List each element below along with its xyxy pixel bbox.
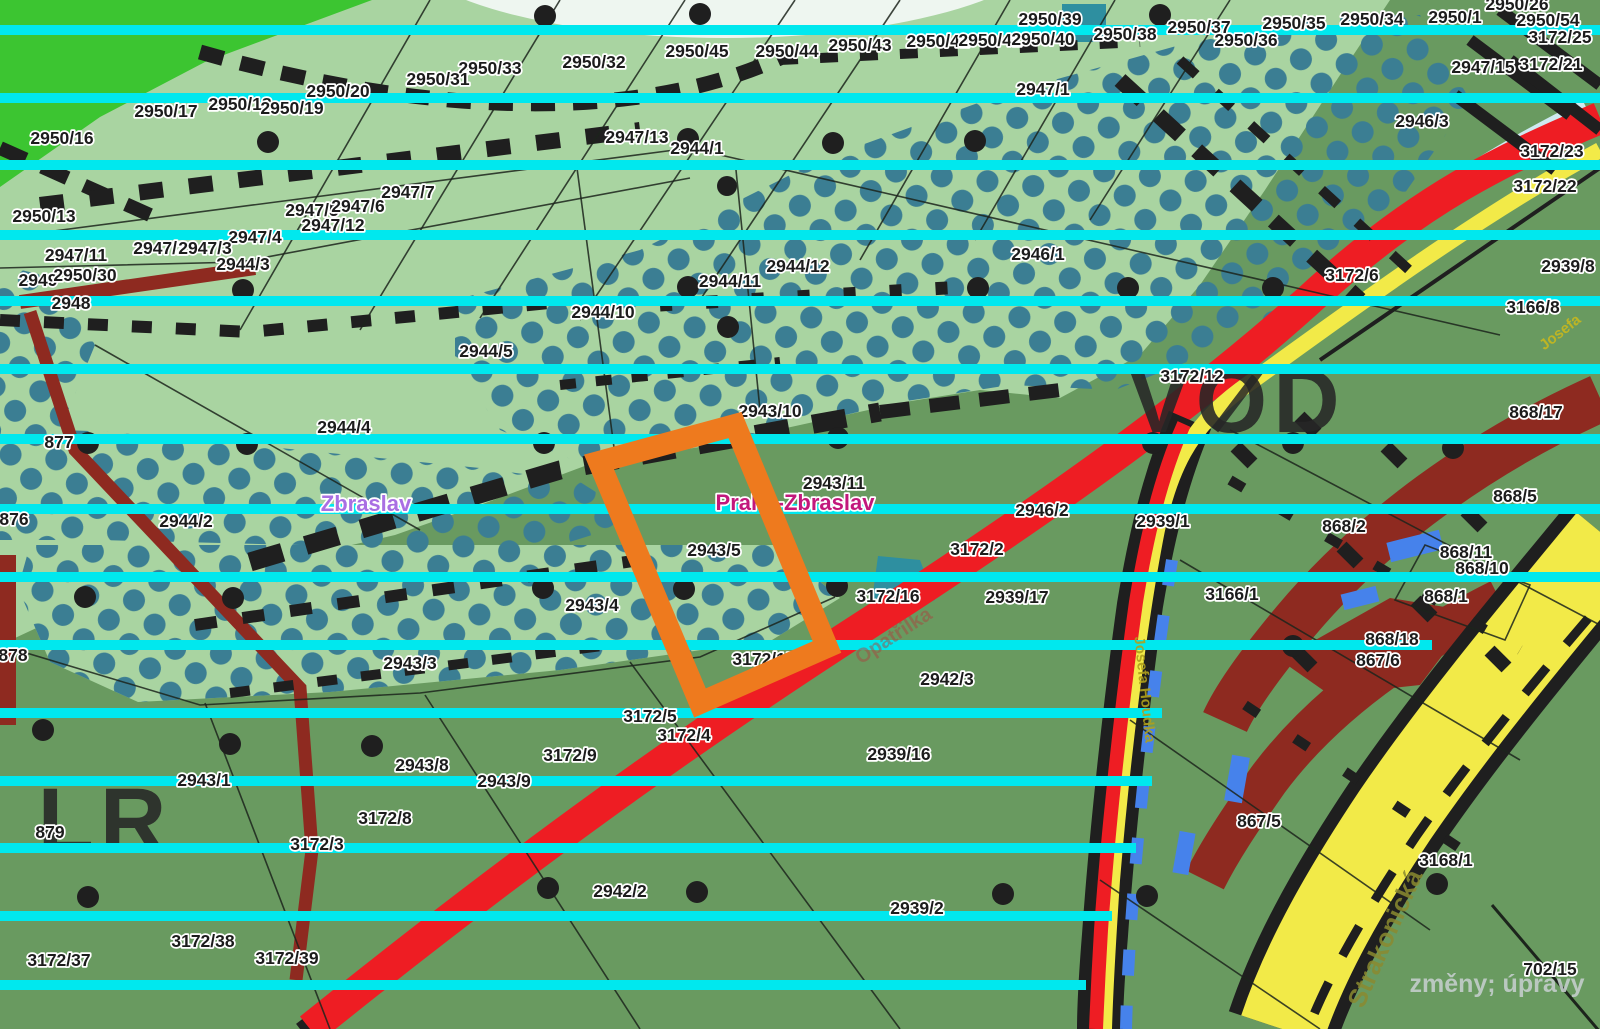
parcel-label: 3172/6 [1325,265,1379,285]
parcel-label: 2950/34 [1340,9,1404,29]
parcel-label: 2944/5 [459,341,513,361]
parcel-label: 2943/1 [177,770,231,790]
parcel-label: 868/10 [1455,558,1509,578]
parcel-label: 2947/1 [1016,79,1070,99]
parcel-label: 2950/39 [1018,9,1082,29]
parcel-label: 2950/1 [1428,7,1482,27]
parcel-label: 3172/16 [856,586,920,606]
cadastral-map[interactable]: VODLR JosefaJosefa HoudkaStrakonickáOpat… [0,0,1600,1029]
parcel-label: 3172/37 [27,950,90,970]
parcel-label: 2950/16 [30,128,94,148]
parcel-label: 2943/8 [395,755,449,775]
parcel-label: 2944/10 [571,302,635,322]
parcel-label: 876 [0,509,29,529]
parcel-label: 877 [44,432,73,452]
parcel-label: 2948 [52,293,91,313]
parcel-label: 2950/43 [828,35,892,55]
parcel-label: 2944/12 [766,256,830,276]
watermark-text: změny; úpravy [1409,970,1584,998]
parcel-label: 2950/32 [562,52,626,72]
parcel-label: 2950/19 [260,98,324,118]
parcel-label: 3168/1 [1419,850,1473,870]
parcel-label: 2943/5 [687,540,741,560]
parcel-label: 3172/22 [1513,176,1577,196]
parcel-label: 878 [0,645,28,665]
parcel-label: 2947/7 [381,182,435,202]
parcel-label: 2944/11 [699,271,762,291]
parcel-label: 2939/16 [867,744,931,764]
parcel-label: 2947/12 [301,215,365,235]
parcel-label: 3172/23 [1520,141,1584,161]
parcel-label: 2943/4 [565,595,619,615]
parcel-label: 2947/4 [228,227,282,247]
parcel-label: 2939/2 [890,898,944,918]
parcel-label: 868/2 [1322,516,1366,536]
map-canvas: VODLR JosefaJosefa HoudkaStrakonickáOpat… [0,0,1600,1029]
place-label: Zbraslav [321,491,412,516]
parcel-label: 2942/2 [593,881,647,901]
parcel-label: 2950/17 [134,101,197,121]
parcel-label: 3172/9 [543,745,597,765]
parcel-label: 2943/3 [383,653,437,673]
parcel-label: 2947/13 [605,127,669,147]
parcel-label: 2950/36 [1214,30,1278,50]
parcel-label: 2950/30 [53,265,117,285]
parcel-label: 2950/31 [406,69,470,89]
parcel-label: 2944/4 [317,417,371,437]
parcel-label: 2939/8 [1541,256,1595,276]
parcel-label: 2942/3 [920,669,974,689]
parcel-label: 3172/39 [255,948,319,968]
parcel-label: 2943/9 [477,771,531,791]
parcel-label: 2943/11 [803,473,866,493]
parcel-label: 3172/12 [1160,366,1224,386]
parcel-label: 868/5 [1493,486,1537,506]
parcel-label: 2946/1 [1011,244,1065,264]
parcel-label: 3172/8 [358,808,412,828]
parcel-label: 2947/11 [45,245,108,265]
parcel-label: 2939/17 [985,587,1048,607]
parcel-label: 868/1 [1424,586,1468,606]
parcel-label: 2950/13 [12,206,76,226]
parcel-label: 3172/25 [1528,27,1592,47]
parcel-label: 867/5 [1237,811,1281,831]
parcel-label: 868/17 [1509,402,1563,422]
parcel-label: 3166/8 [1506,297,1560,317]
parcel-label: 2950/45 [665,41,729,61]
parcel-label: 2950/38 [1093,24,1157,44]
parcel-label: 3172/38 [171,931,235,951]
parcel-label: 2950/40 [1011,29,1075,49]
parcel-label: 867/6 [1356,650,1400,670]
parcel-label: 2947/6 [331,196,385,216]
parcel-label: 2946/2 [1015,500,1069,520]
parcel-label: 3172/5 [623,706,677,726]
parcel-label: 868/18 [1365,629,1419,649]
parcel-label: 2944/3 [216,254,270,274]
parcel-label: 3172/3 [290,834,344,854]
parcel-label: 2947/15 [1451,57,1515,77]
parcel-label: 3172/4 [657,725,711,745]
place-label: Praha-Zbraslav [716,490,876,515]
parcel-label: 2943/10 [738,401,802,421]
parcel-label: 879 [35,822,64,842]
parcel-label: 2950/44 [755,41,819,61]
parcel-label: 2944/1 [670,138,724,158]
parcel-label: 3172/21 [1519,54,1583,74]
parcel-label: 2939/1 [1136,511,1190,531]
parcel-label: 2949 [19,270,58,290]
parcel-label: 2944/2 [159,511,213,531]
parcel-label: 3172/2 [950,539,1004,559]
parcel-label: 3166/1 [1205,584,1259,604]
parcel-label: 2946/3 [1395,111,1449,131]
